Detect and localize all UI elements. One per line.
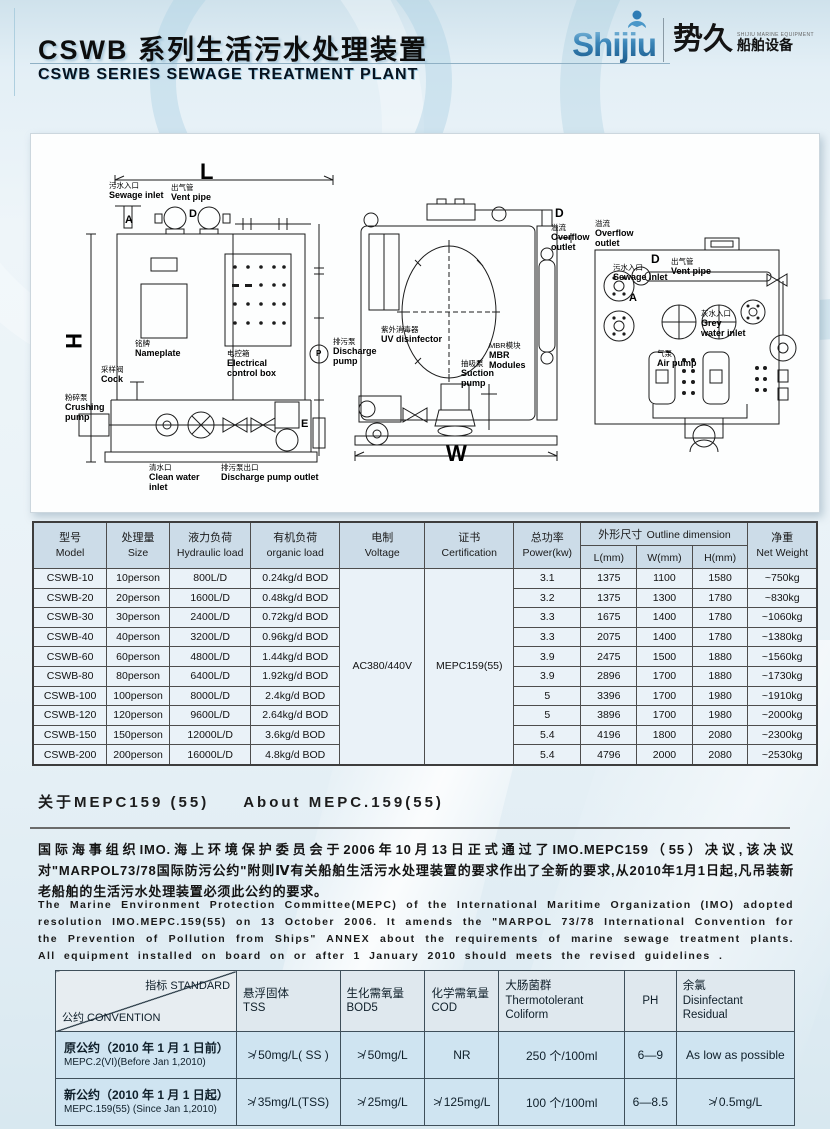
- logo-subtitle-zh: 船舶设备: [737, 38, 814, 53]
- mark-D: D: [651, 252, 660, 266]
- cell-organic-load: 0.96kg/d BOD: [251, 627, 340, 647]
- cell-model: CSWB-30: [33, 608, 107, 628]
- cell-ph: 6—9: [625, 1032, 677, 1079]
- cell-length: 4796: [581, 745, 637, 765]
- cell-width: 1400: [637, 608, 693, 628]
- cell-height: 2080: [692, 725, 748, 745]
- logo-company-block: 势久 SHIJIU MARINE EQUIPMENT 船舶设备: [673, 25, 814, 55]
- logo-subtitle-block: SHIJIU MARINE EQUIPMENT 船舶设备: [737, 32, 814, 55]
- cell-size: 10person: [107, 569, 170, 589]
- cell-model: CSWB-60: [33, 647, 107, 667]
- mark-A: A: [125, 214, 133, 226]
- cell-model: CSWB-120: [33, 706, 107, 726]
- cell-cod: NR: [425, 1032, 499, 1079]
- header-size: 处理量 Size: [107, 522, 170, 569]
- logo-divider: [663, 18, 664, 62]
- cell-coliform: 250 个/100ml: [499, 1032, 625, 1079]
- label-cock: 采样阀 Cock: [101, 366, 141, 385]
- cell-certification: MEPC159(55): [425, 569, 514, 765]
- mepc-heading-en: About MEPC.159(55): [243, 794, 444, 811]
- cell-ph: 6—8.5: [625, 1079, 677, 1126]
- cell-model: CSWB-20: [33, 588, 107, 608]
- header-tss: 悬浮固体 TSS: [237, 971, 340, 1032]
- cell-model: CSWB-40: [33, 627, 107, 647]
- cell-width: 1300: [637, 588, 693, 608]
- cell-width: 1700: [637, 706, 693, 726]
- logo-brand-block: Shijiu: [572, 16, 656, 64]
- section-divider: [30, 827, 790, 829]
- dimension-H: H: [60, 333, 86, 349]
- cell-tss: ≯ 50mg/L( SS ): [237, 1032, 340, 1079]
- cell-organic-load: 4.8kg/d BOD: [251, 745, 340, 765]
- cell-width: 1500: [637, 647, 693, 667]
- cell-net-weight: ~1560kg: [748, 647, 817, 667]
- cell-width: 1100: [637, 569, 693, 589]
- label-mbr-modules: MBR模块 MBR Modules: [489, 342, 545, 370]
- spec-table: 型号 Model 处理量 Size 液力负荷 Hydraulic load 有机…: [32, 521, 818, 766]
- label-uv-disinfector: 紫外消毒器 UV disinfector: [381, 326, 461, 345]
- cell-net-weight: ~1060kg: [748, 608, 817, 628]
- standards-row-old-convention: 原公约（2010 年 1 月 1 日前） MEPC.2(VI)(Before J…: [56, 1032, 795, 1079]
- label-overflow-outlet: 溢流 Overflow outlet: [595, 220, 655, 248]
- cell-net-weight: ~2300kg: [748, 725, 817, 745]
- mepc-heading-zh: 关于MEPC159 (55): [38, 794, 209, 811]
- cell-hydraulic-load: 12000L/D: [169, 725, 251, 745]
- mark-P: P: [316, 349, 321, 358]
- label-en: Air pump: [657, 359, 697, 369]
- header-width: W(mm): [637, 546, 693, 569]
- cell-length: 3396: [581, 686, 637, 706]
- drawing-top-view: 溢流 Overflow outlet 污水入口 Sewage inlet A D…: [587, 220, 812, 455]
- cell-height: 1780: [692, 608, 748, 628]
- cell-width: 1800: [637, 725, 693, 745]
- label-electrical-box: 电控箱 Electrical control box: [227, 350, 287, 378]
- cell-net-weight: ~1380kg: [748, 627, 817, 647]
- cell-height: 2080: [692, 745, 748, 765]
- standards-header-row: 指标 STANDARD 公约 CONVENTION 悬浮固体 TSS 生化需氧量…: [56, 971, 795, 1032]
- label-discharge-pump-outlet: 排污泵出口 Discharge pump outlet: [221, 464, 325, 483]
- cell-length: 1675: [581, 608, 637, 628]
- spec-table-body: CSWB-1010person800L/D0.24kg/d BODAC380/4…: [33, 569, 817, 765]
- cell-size: 20person: [107, 588, 170, 608]
- technical-drawing-panel: L H 污水入口 Sewage inlet A 出气管 Vent pipe D …: [30, 133, 820, 513]
- standards-row-new-convention: 新公约（2010 年 1 月 1 日起） MEPC.159(55) (Since…: [56, 1079, 795, 1126]
- cell-length: 2475: [581, 647, 637, 667]
- cell-power: 3.9: [514, 647, 581, 667]
- dimension-L: L: [200, 159, 213, 185]
- cell-height: 1580: [692, 569, 748, 589]
- cell-power: 5: [514, 686, 581, 706]
- label-air-pump: 气泵 Air pump: [657, 350, 697, 369]
- cell-width: 1400: [637, 627, 693, 647]
- cell-hydraulic-load: 9600L/D: [169, 706, 251, 726]
- label-en: Crushing pump: [65, 403, 117, 423]
- cell-organic-load: 3.6kg/d BOD: [251, 725, 340, 745]
- cell-tss: ≯ 35mg/L(TSS): [237, 1079, 340, 1126]
- cell-residual: ≯ 0.5mg/L: [676, 1079, 794, 1126]
- cell-height: 1880: [692, 666, 748, 686]
- cell-organic-load: 2.4kg/d BOD: [251, 686, 340, 706]
- header-organic-load: 有机负荷 organic load: [251, 522, 340, 569]
- cell-net-weight: ~2000kg: [748, 706, 817, 726]
- label-en: Nameplate: [135, 349, 197, 359]
- label-en: Grey water inlet: [701, 319, 747, 339]
- corner-standard-label: 指标 STANDARD: [145, 977, 230, 993]
- drawing-front-view: L H 污水入口 Sewage inlet A 出气管 Vent pipe D …: [75, 168, 345, 478]
- cell-power: 3.2: [514, 588, 581, 608]
- top-view-lineart: [587, 220, 812, 455]
- cell-length: 2075: [581, 627, 637, 647]
- label-grey-water-inlet: 灰水入口 Grey water inlet: [701, 310, 747, 338]
- cell-net-weight: ~1730kg: [748, 666, 817, 686]
- cell-hydraulic-load: 4800L/D: [169, 647, 251, 667]
- corner-convention-label: 公约 CONVENTION: [62, 1009, 160, 1025]
- label-en: Vent pipe: [171, 193, 231, 203]
- cell-voltage: AC380/440V: [340, 569, 425, 765]
- cell-size: 100person: [107, 686, 170, 706]
- header-bod5: 生化需氧量 BOD5: [340, 971, 425, 1032]
- cell-size: 60person: [107, 647, 170, 667]
- page-subtitle: CSWB SERIES SEWAGE TREATMENT PLANT: [38, 66, 418, 84]
- cell-net-weight: ~2530kg: [748, 745, 817, 765]
- cell-organic-load: 0.48kg/d BOD: [251, 588, 340, 608]
- cell-organic-load: 0.24kg/d BOD: [251, 569, 340, 589]
- row-header-old: 原公约（2010 年 1 月 1 日前） MEPC.2(VI)(Before J…: [56, 1032, 237, 1079]
- header-cod: 化学需氧量 COD: [425, 971, 499, 1032]
- cell-width: 1700: [637, 666, 693, 686]
- cell-model: CSWB-200: [33, 745, 107, 765]
- cell-organic-load: 0.72kg/d BOD: [251, 608, 340, 628]
- label-en: Suction pump: [461, 369, 511, 389]
- logo: Shijiu 势久 SHIJIU MARINE EQUIPMENT 船舶设备: [572, 12, 814, 68]
- cell-hydraulic-load: 16000L/D: [169, 745, 251, 765]
- header-outline-dimension: 外形尺寸 Outline dimension: [581, 522, 748, 546]
- header-hydraulic-load: 液力负荷 Hydraulic load: [169, 522, 251, 569]
- logo-brand-text: Shijiu: [572, 26, 656, 63]
- mepc-paragraph-en: The Marine Environment Protection Commit…: [38, 897, 794, 965]
- cell-size: 150person: [107, 725, 170, 745]
- label-en: MBR Modules: [489, 351, 545, 371]
- cell-coliform: 100 个/100ml: [499, 1079, 625, 1126]
- header-vertical-rule: [14, 8, 15, 96]
- cell-power: 5.4: [514, 745, 581, 765]
- mepc-paragraph-zh: 国际海事组织IMO.海上环境保护委员会于2006年10月13日正式通过了IMO.…: [38, 839, 794, 902]
- cell-cod: ≯ 125mg/L: [425, 1079, 499, 1126]
- cell-hydraulic-load: 6400L/D: [169, 666, 251, 686]
- cell-model: CSWB-80: [33, 666, 107, 686]
- header-certification: 证书 Certification: [425, 522, 514, 569]
- drawing-side-view: D 溢流 Overflow outlet 排污泵 Discharge pump …: [349, 198, 579, 468]
- header-voltage: 电制 Voltage: [340, 522, 425, 569]
- mark-E: E: [301, 418, 308, 430]
- cell-net-weight: ~750kg: [748, 569, 817, 589]
- cell-power: 3.3: [514, 608, 581, 628]
- cell-net-weight: ~830kg: [748, 588, 817, 608]
- cell-hydraulic-load: 1600L/D: [169, 588, 251, 608]
- header-model: 型号 Model: [33, 522, 107, 569]
- cell-width: 1700: [637, 686, 693, 706]
- cell-size: 40person: [107, 627, 170, 647]
- cell-length: 1375: [581, 588, 637, 608]
- cell-net-weight: ~1910kg: [748, 686, 817, 706]
- logo-person-icon: [626, 10, 648, 30]
- label-vent-pipe: 出气管 Vent pipe: [671, 258, 741, 277]
- header-coliform: 大肠菌群 Thermotolerant Coliform: [499, 971, 625, 1032]
- mark-D: D: [189, 208, 197, 220]
- header-net-weight: 净重 Net Weight: [748, 522, 817, 569]
- cell-size: 30person: [107, 608, 170, 628]
- catalog-page: CSWB 系列生活污水处理装置 CSWB SERIES SEWAGE TREAT…: [0, 0, 830, 1129]
- cell-residual: As low as possible: [676, 1032, 794, 1079]
- header-length: L(mm): [581, 546, 637, 569]
- spec-row: CSWB-1010person800L/D0.24kg/d BODAC380/4…: [33, 569, 817, 589]
- label-en: Sewage inlet: [109, 191, 169, 201]
- cell-size: 80person: [107, 666, 170, 686]
- cell-length: 2896: [581, 666, 637, 686]
- cell-model: CSWB-10: [33, 569, 107, 589]
- front-view-lineart: [75, 168, 345, 478]
- cell-bod5: ≯ 25mg/L: [340, 1079, 425, 1126]
- logo-company-name: 势久: [673, 25, 733, 55]
- label-sewage-inlet: 污水入口 Sewage inlet: [109, 182, 169, 201]
- cell-power: 3.9: [514, 666, 581, 686]
- cell-height: 1780: [692, 627, 748, 647]
- cell-organic-load: 1.44kg/d BOD: [251, 647, 340, 667]
- cell-bod5: ≯ 50mg/L: [340, 1032, 425, 1079]
- cell-height: 1980: [692, 686, 748, 706]
- cell-width: 2000: [637, 745, 693, 765]
- cell-hydraulic-load: 800L/D: [169, 569, 251, 589]
- page-title: CSWB 系列生活污水处理装置: [38, 28, 428, 67]
- label-en: Overflow outlet: [595, 229, 655, 249]
- label-en: Sewage inlet: [613, 273, 669, 283]
- standards-table: 指标 STANDARD 公约 CONVENTION 悬浮固体 TSS 生化需氧量…: [55, 970, 795, 1126]
- cell-size: 200person: [107, 745, 170, 765]
- cell-height: 1980: [692, 706, 748, 726]
- cell-hydraulic-load: 3200L/D: [169, 627, 251, 647]
- label-clean-water-inlet: 清水口 Clean water inlet: [149, 464, 213, 492]
- cell-height: 1780: [692, 588, 748, 608]
- row-header-new: 新公约（2010 年 1 月 1 日起） MEPC.159(55) (Since…: [56, 1079, 237, 1126]
- label-en: Discharge pump: [333, 347, 395, 367]
- cell-model: CSWB-100: [33, 686, 107, 706]
- mark-D: D: [555, 206, 564, 220]
- label-en: Clean water inlet: [149, 473, 213, 493]
- header-ph: PH: [625, 971, 677, 1032]
- header-disinfectant-residual: 余氯 Disinfectant Residual: [676, 971, 794, 1032]
- label-en: Discharge pump outlet: [221, 473, 325, 483]
- cell-hydraulic-load: 2400L/D: [169, 608, 251, 628]
- cell-power: 3.3: [514, 627, 581, 647]
- cell-size: 120person: [107, 706, 170, 726]
- cell-hydraulic-load: 8000L/D: [169, 686, 251, 706]
- label-nameplate: 铭牌 Nameplate: [135, 340, 197, 359]
- mepc-section-heading: 关于MEPC159 (55)About MEPC.159(55): [38, 791, 444, 812]
- label-en: Electrical control box: [227, 359, 287, 379]
- cell-power: 5: [514, 706, 581, 726]
- cell-length: 4196: [581, 725, 637, 745]
- cell-length: 1375: [581, 569, 637, 589]
- cell-organic-load: 2.64kg/d BOD: [251, 706, 340, 726]
- cell-length: 3896: [581, 706, 637, 726]
- label-en: Vent pipe: [671, 267, 741, 277]
- label-vent-pipe: 出气管 Vent pipe: [171, 184, 231, 203]
- label-en: Cock: [101, 375, 141, 385]
- cell-height: 1880: [692, 647, 748, 667]
- header-height: H(mm): [692, 546, 748, 569]
- cell-organic-load: 1.92kg/d BOD: [251, 666, 340, 686]
- label-en: UV disinfector: [381, 335, 461, 345]
- header-power: 总功率 Power(kw): [514, 522, 581, 569]
- spec-header-row-1: 型号 Model 处理量 Size 液力负荷 Hydraulic load 有机…: [33, 522, 817, 546]
- dimension-W: W: [446, 441, 467, 467]
- cell-power: 3.1: [514, 569, 581, 589]
- label-crushing-pump: 粉碎泵 Crushing pump: [65, 394, 117, 422]
- cell-model: CSWB-150: [33, 725, 107, 745]
- label-sewage-inlet: 污水入口 Sewage inlet: [613, 264, 669, 283]
- cell-power: 5.4: [514, 725, 581, 745]
- mark-A: A: [629, 292, 637, 304]
- corner-header-cell: 指标 STANDARD 公约 CONVENTION: [56, 971, 237, 1032]
